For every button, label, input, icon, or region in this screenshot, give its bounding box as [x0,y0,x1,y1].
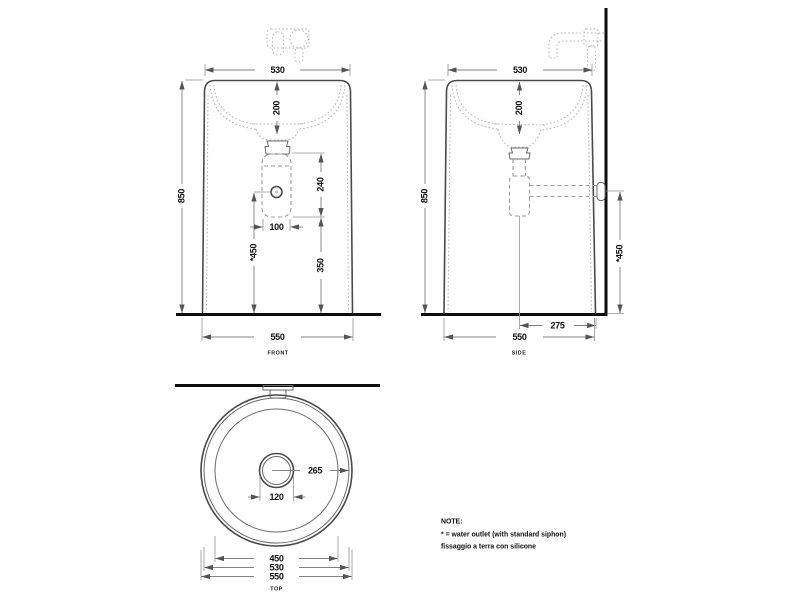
side-faucet-icon [549,29,604,71]
side-view-label: SIDE [512,350,527,356]
note-block: NOTE: * = water outlet (with standard si… [441,519,566,551]
front-faucet-icon [267,29,309,62]
front-dim-siphon-to-floor: 350 [315,258,325,272]
note-line-2: fissaggio a terra con silicone [441,544,536,551]
side-dim-width-top: 530 [513,65,527,75]
front-view-label: FRONT [267,350,288,356]
front-dim-height: 850 [176,189,186,203]
top-basin-circles [201,395,352,546]
front-dim-width-bottom: 550 [270,332,284,342]
top-view: 265 120 450 530 550 TOP [175,386,380,593]
side-dim-outlet-height: *450 [614,245,624,263]
drawing-canvas: 530 850 200 240 350 *450 [0,0,800,600]
side-view: 530 850 200 *450 275 550 SID [419,8,624,356]
top-dim-outer-diameter: 550 [269,571,283,581]
technical-drawing-page: 530 850 200 240 350 *450 [0,0,800,600]
side-dim-height: 850 [419,189,429,203]
front-siphon [254,141,291,217]
front-dim-outlet-height: *450 [248,244,258,262]
front-dim-basin-depth: 200 [271,101,281,115]
note-line-1: * = water outlet (with standard siphon) [441,532,566,539]
side-wall-outlet-icon [597,183,605,201]
top-view-label: TOP [270,586,282,592]
note-title: NOTE: [441,519,462,526]
front-view: 530 850 200 240 350 *450 [176,29,381,356]
front-dim-siphon-length: 240 [315,177,325,191]
top-dim-center-to-rim: 265 [308,465,322,475]
side-dim-drain-to-wall: 275 [550,320,564,330]
side-siphon [509,148,605,329]
front-dim-siphon-width: 100 [269,222,283,232]
front-dim-width-top: 530 [270,65,284,75]
side-dim-depth-bottom: 550 [512,332,526,342]
side-dim-basin-depth: 200 [514,101,524,115]
top-dim-drain-hole: 120 [269,492,283,502]
